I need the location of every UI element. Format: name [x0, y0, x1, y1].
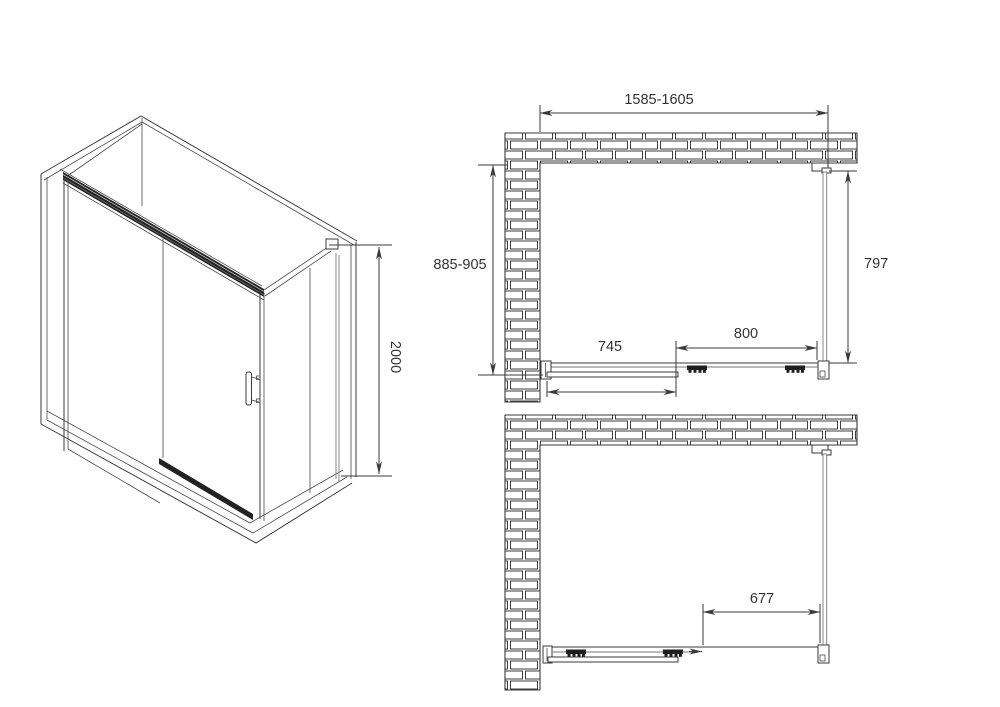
dimension-overall-width-label: 1585-1605	[624, 92, 693, 108]
dimension-opening: 677	[703, 591, 820, 645]
wall-bracket	[812, 445, 831, 455]
brick-wall	[505, 415, 857, 690]
dimension-sliding-door: 800	[676, 326, 817, 360]
plan-view-closed: 1585-1605 885-905 797 745 800	[433, 92, 888, 402]
dimension-height-label: 2000	[387, 341, 403, 373]
roller-carriage	[687, 366, 707, 373]
dimension-fixed-section: 745	[547, 339, 676, 397]
glass-side-panel	[823, 454, 827, 646]
dimension-height: 2000	[329, 245, 403, 476]
roller-carriage	[663, 650, 683, 657]
drawing-page: 2000 1585-1605	[0, 0, 1000, 707]
side-panel	[264, 239, 339, 493]
dimension-sliding-door-label: 800	[734, 326, 758, 342]
glass-side-panel	[823, 172, 827, 362]
sliding-door	[60, 169, 264, 521]
roller-carriage	[785, 366, 805, 373]
corner-profile-right	[818, 361, 829, 379]
door-glass	[547, 372, 678, 377]
brick-wall	[505, 133, 857, 402]
wall-bracket	[326, 239, 338, 249]
isometric-view: 2000	[41, 116, 403, 543]
door-glass	[548, 657, 678, 662]
wall-bracket	[812, 163, 831, 173]
dimension-side-panel: 797	[829, 171, 888, 363]
top-rail	[63, 172, 264, 297]
roller-carriage	[566, 650, 586, 657]
dimension-side-panel-label: 797	[864, 256, 888, 272]
corner-profile-right	[818, 645, 829, 663]
dimension-fixed-section-label: 745	[598, 339, 622, 355]
plan-view-open: 677	[505, 415, 857, 690]
dimension-opening-label: 677	[750, 591, 774, 607]
dimension-depth-label: 885-905	[433, 257, 486, 273]
shower-tray	[41, 411, 352, 543]
technical-drawing: 2000 1585-1605	[0, 0, 1000, 707]
door-handle	[246, 372, 260, 405]
